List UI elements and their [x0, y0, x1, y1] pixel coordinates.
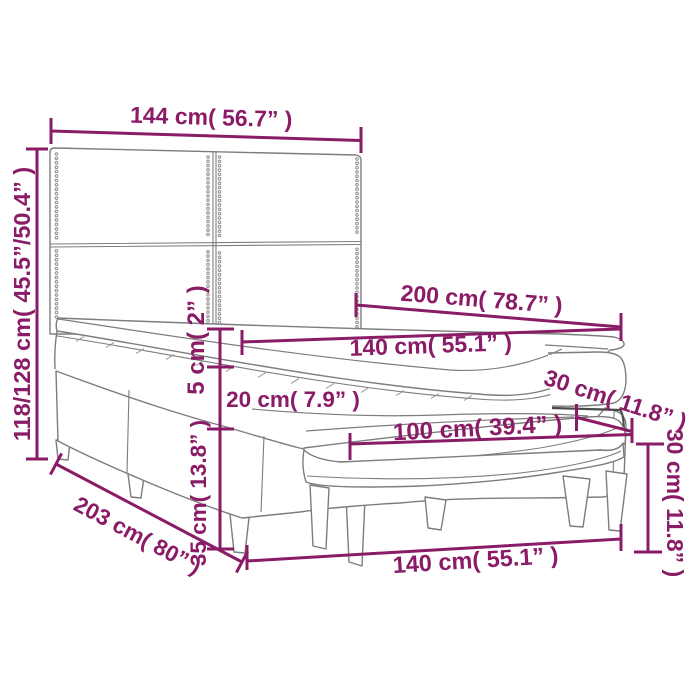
svg-text:118/128 cm( 45.5”/50.4” ): 118/128 cm( 45.5”/50.4” ) [9, 167, 35, 441]
svg-text:144 cm( 56.7” ): 144 cm( 56.7” ) [130, 102, 293, 133]
svg-text:30 cm( 11.8” ): 30 cm( 11.8” ) [662, 429, 688, 577]
svg-text:5 cm( 2” ): 5 cm( 2” ) [183, 285, 210, 394]
svg-text:35 cm( 13.8” ): 35 cm( 13.8” ) [186, 420, 211, 566]
svg-text:20 cm( 7.9” ): 20 cm( 7.9” ) [226, 387, 360, 412]
